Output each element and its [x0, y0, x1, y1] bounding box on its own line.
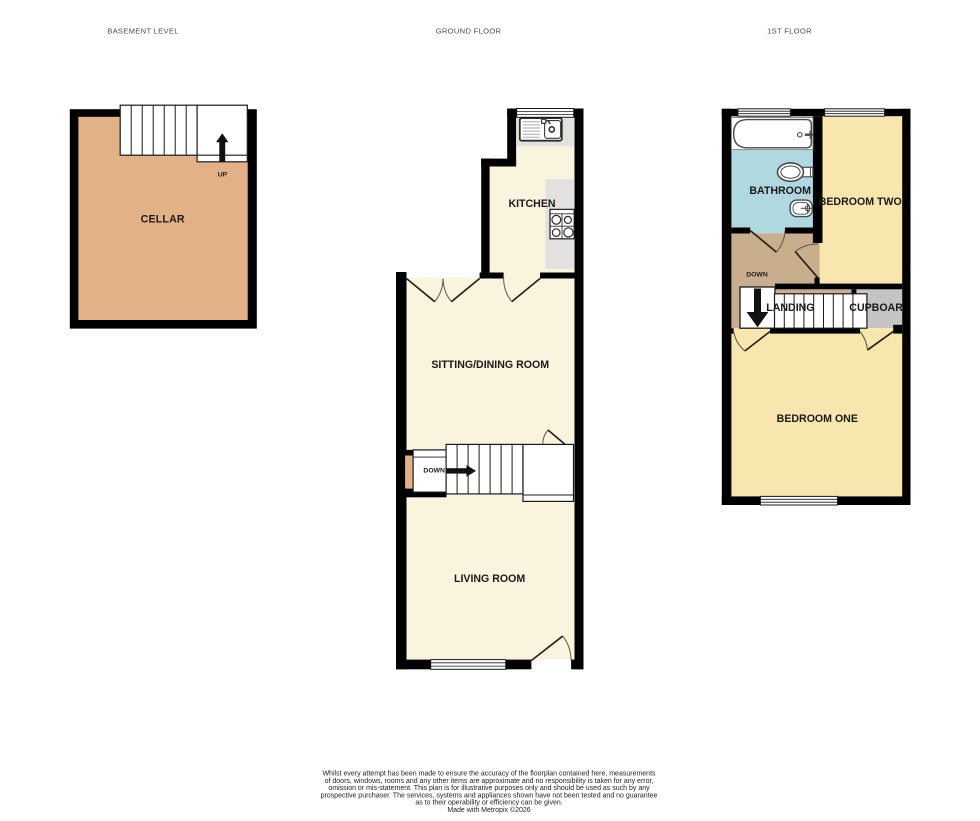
svg-text:CUPBOARD: CUPBOARD — [849, 302, 911, 314]
svg-text:GROUND FLOOR: GROUND FLOOR — [436, 27, 502, 36]
svg-text:BATHROOM: BATHROOM — [749, 185, 811, 197]
svg-text:LANDING: LANDING — [766, 302, 814, 314]
svg-text:Made with Metropix ©2026: Made with Metropix ©2026 — [447, 806, 530, 814]
svg-text:DOWN: DOWN — [746, 272, 768, 279]
svg-text:BEDROOM TWO: BEDROOM TWO — [819, 196, 902, 208]
svg-text:CELLAR: CELLAR — [141, 213, 185, 225]
svg-text:Whilst every attempt has been: Whilst every attempt has been made to en… — [322, 771, 656, 778]
svg-text:KITCHEN: KITCHEN — [508, 198, 555, 210]
svg-text:DOWN: DOWN — [423, 468, 445, 475]
svg-text:BEDROOM ONE: BEDROOM ONE — [777, 413, 858, 425]
svg-text:omission or mis-statement. Thi: omission or mis-statement. This plan is … — [328, 785, 650, 792]
svg-text:SITTING/DINING ROOM: SITTING/DINING ROOM — [431, 359, 549, 371]
svg-text:LIVING ROOM: LIVING ROOM — [454, 573, 525, 585]
svg-text:prospective purchaser. The ser: prospective purchaser. The services, sys… — [321, 792, 658, 799]
svg-text:as to their operability or eff: as to their operability or efficiency ca… — [415, 800, 562, 807]
svg-text:BASEMENT LEVEL: BASEMENT LEVEL — [107, 27, 179, 36]
svg-text:of doors, windows, rooms and a: of doors, windows, rooms and any other i… — [325, 778, 654, 785]
svg-text:1ST FLOOR: 1ST FLOOR — [767, 27, 812, 36]
svg-text:UP: UP — [218, 172, 228, 179]
